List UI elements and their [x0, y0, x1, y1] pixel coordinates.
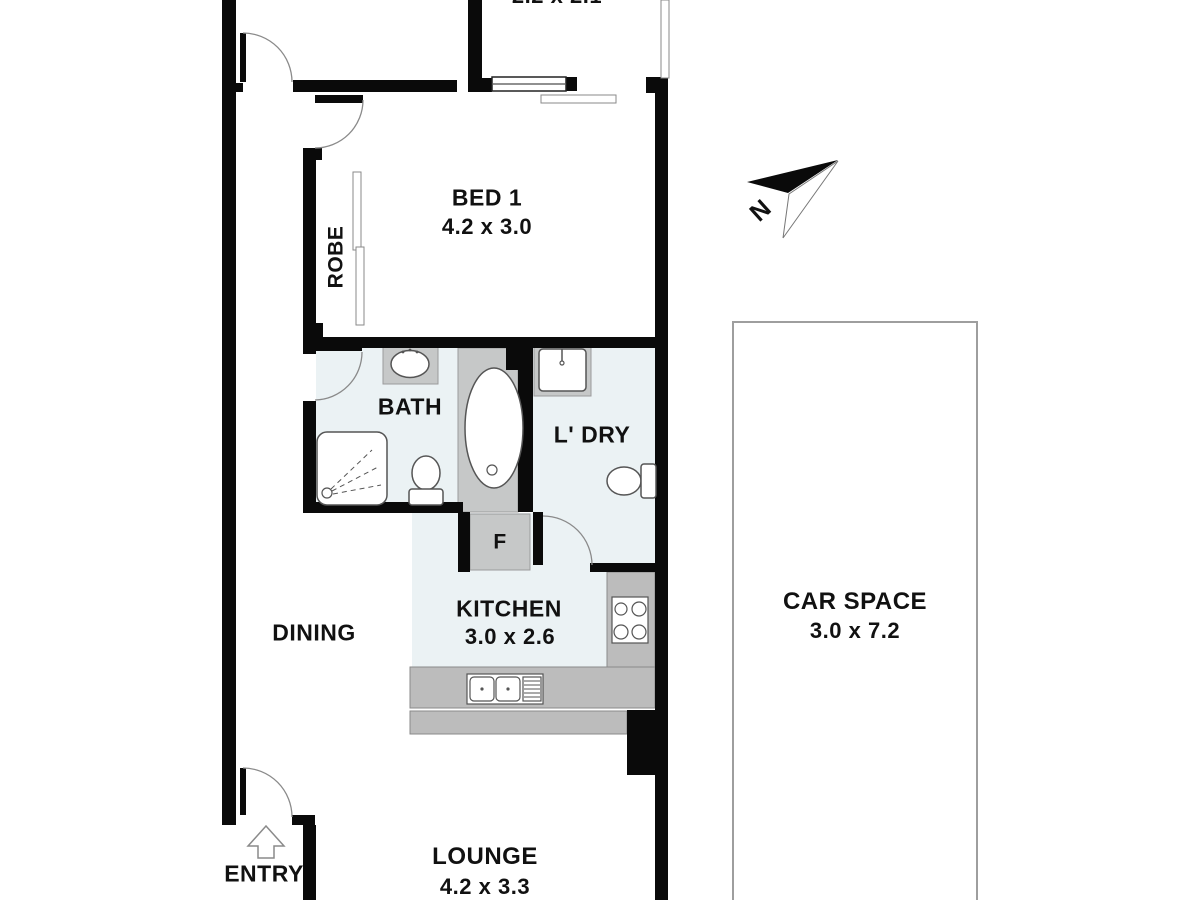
- laundry-toilet-tank: [641, 464, 656, 498]
- balcony-dim-label: 2.2 x 2.1: [512, 0, 602, 7]
- laundry-label: L' DRY: [554, 424, 631, 447]
- lounge-label: LOUNGE: [432, 845, 538, 869]
- laundry-bottom-wall: [590, 563, 655, 572]
- sink-drain-dot: [480, 687, 483, 690]
- bedroom-door-arc: [315, 100, 363, 148]
- windows: [353, 0, 669, 325]
- bath-toilet-tank: [409, 489, 443, 505]
- robe-top-nib: [303, 148, 322, 160]
- kitchen-corner-block: [627, 710, 668, 775]
- vanity-tap-dot: [409, 349, 412, 352]
- sink-drain-dot: [506, 687, 509, 690]
- kitchen-label: KITCHEN: [456, 598, 562, 621]
- robe-sliding-door-2: [356, 247, 364, 325]
- bathtub-nib: [506, 348, 518, 370]
- balcony-left-wall: [468, 0, 482, 80]
- bath-label: BATH: [378, 396, 442, 419]
- robe-back-wall: [303, 148, 316, 337]
- top-room-door-arc: [243, 33, 292, 82]
- vanity-tap-dot: [402, 351, 405, 354]
- cooktop-burner: [615, 603, 627, 615]
- robe-sliding-door-1: [353, 172, 361, 250]
- cooktop-burner: [632, 625, 646, 639]
- car-space-label: CAR SPACE: [783, 590, 927, 614]
- kitchen-dim-label: 3.0 x 2.6: [465, 626, 555, 648]
- entry-corner-wall: [292, 815, 315, 825]
- vanity-basin: [391, 351, 429, 378]
- bathtub-drain: [487, 465, 497, 475]
- bedroom-top-wall: [293, 80, 457, 92]
- robe-label: ROBE: [326, 226, 347, 289]
- floor-plan-drawing: [0, 0, 1200, 900]
- sliding-door-post: [566, 77, 577, 91]
- bath-door-leaf: [315, 343, 362, 351]
- entry-door-leaf: [240, 768, 246, 815]
- top-door-leaf: [240, 33, 246, 82]
- bath-left-wall-stub: [303, 348, 316, 354]
- entry-label: ENTRY: [224, 863, 304, 886]
- bedroom-door-leaf: [315, 95, 363, 103]
- fridge-left-nib: [458, 512, 470, 572]
- balcony-left-wall-foot: [468, 78, 492, 92]
- laundry-toilet-bowl: [607, 467, 641, 495]
- entry-arrow-icon: [248, 826, 284, 858]
- fridge-label: F: [493, 532, 506, 553]
- cooktop-burner: [632, 602, 646, 616]
- bed1-dim-label: 4.2 x 3.0: [442, 216, 532, 238]
- shower-drain: [322, 488, 332, 498]
- cooktop-burner: [614, 625, 628, 639]
- lounge-dim-label: 4.2 x 3.3: [440, 876, 530, 898]
- fridge-right-nib: [533, 512, 543, 565]
- balcony-railing: [661, 0, 669, 78]
- entry-door-arc: [243, 768, 292, 817]
- vanity-tap-dot: [416, 351, 419, 354]
- lounge-left-wall: [303, 825, 316, 900]
- floor-plan: 2.2 x 2.1 BED 1 4.2 x 3.0 ROBE BATH L' D…: [0, 0, 1200, 900]
- dining-label: DINING: [272, 622, 356, 645]
- right-outer-wall: [655, 88, 668, 900]
- top-door-nib: [222, 83, 243, 92]
- left-outer-wall: [222, 0, 236, 825]
- car-space-dim-label: 3.0 x 7.2: [810, 620, 900, 642]
- bath-left-wall: [303, 401, 316, 512]
- bed1-label: BED 1: [452, 187, 522, 210]
- robe-bottom-nib: [303, 323, 323, 337]
- kitchen-bench-lower: [410, 711, 627, 734]
- bedroom-window-pane: [541, 95, 616, 103]
- bath-toilet-bowl: [412, 456, 440, 490]
